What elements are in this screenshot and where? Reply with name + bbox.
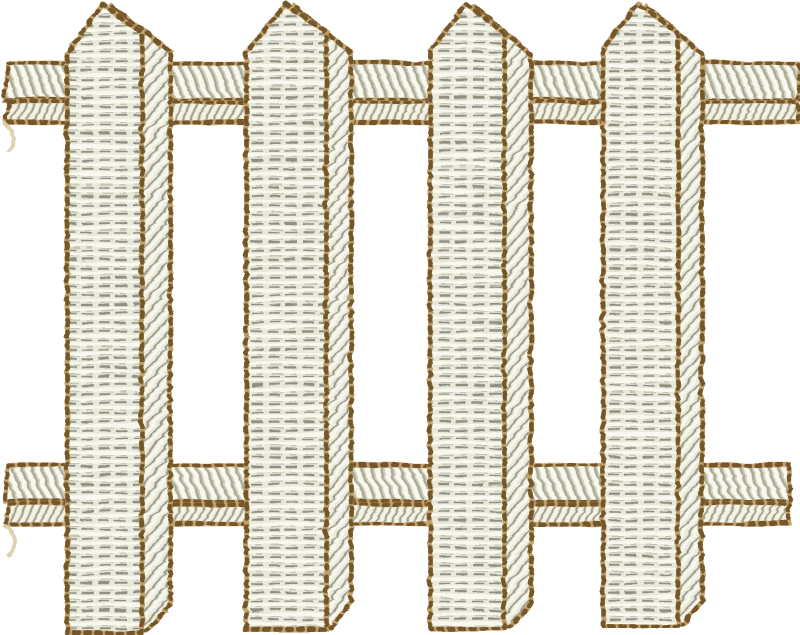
fence-picket-3 (429, 3, 530, 628)
picket-front-face (245, 3, 325, 628)
fence-picket-4 (602, 3, 701, 625)
picket-front-face (429, 3, 503, 628)
fence-group (3, 3, 798, 632)
travel-stitch (3, 122, 12, 150)
travel-stitch (3, 524, 13, 554)
fence-picket-1 (66, 3, 169, 632)
picket-front-face (602, 3, 677, 625)
picket-front-face (66, 3, 141, 632)
picket-fence-embroidery (0, 0, 800, 635)
fence-picket-2 (245, 3, 350, 628)
embroidery-canvas (0, 0, 800, 635)
